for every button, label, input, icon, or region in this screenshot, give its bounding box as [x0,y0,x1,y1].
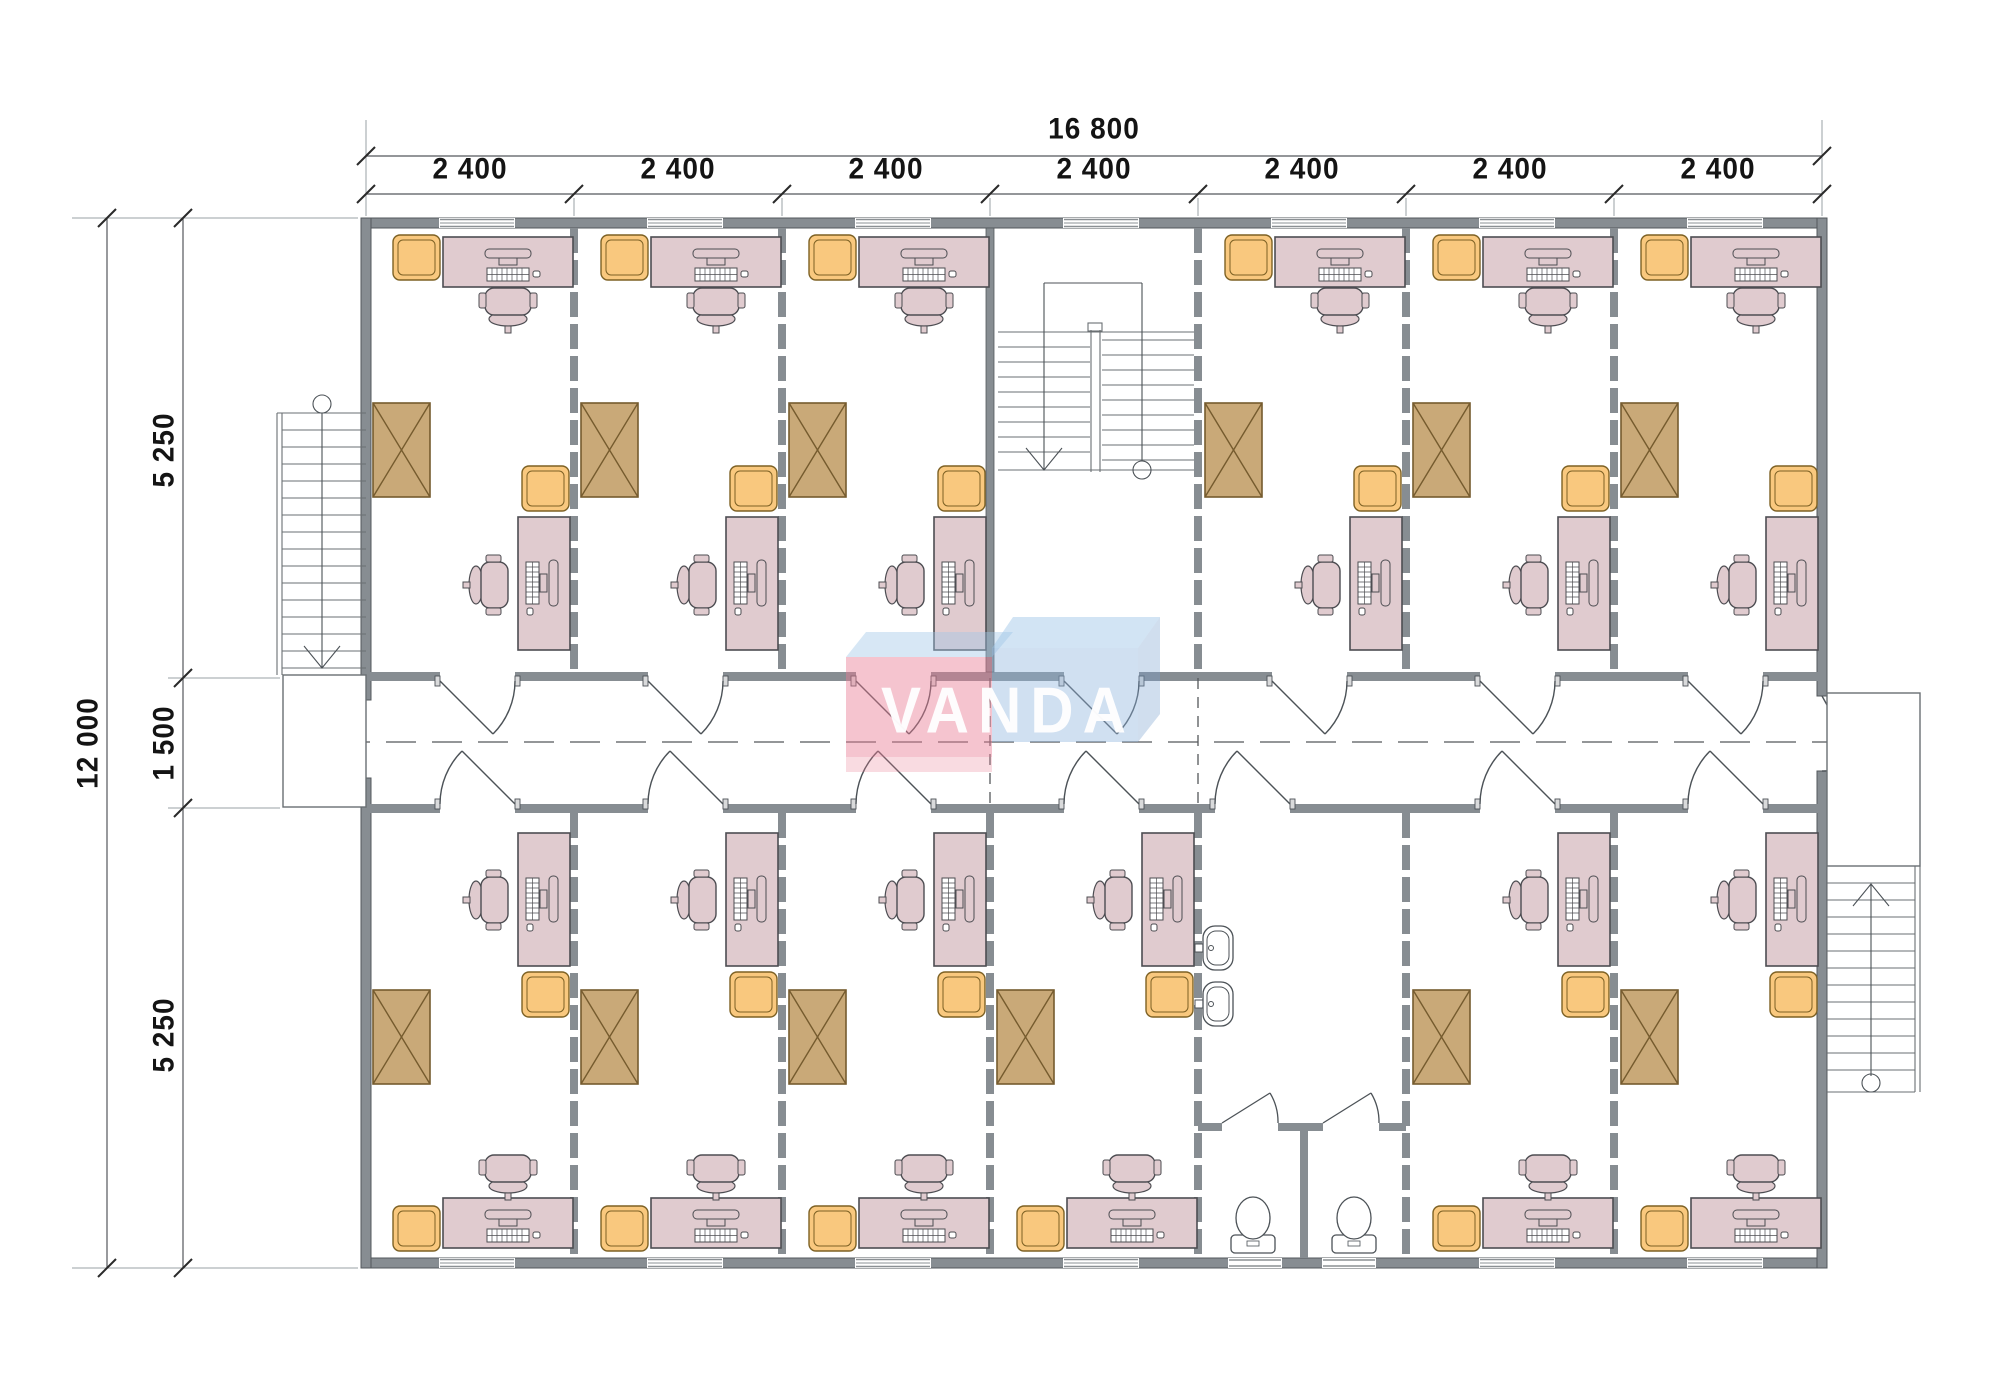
toilet [1231,1197,1275,1253]
dim-bay-5: 2 400 [1242,152,1362,186]
floor-plan-page: 16 800 2 400 2 400 2 400 2 400 2 400 2 4… [0,0,2000,1380]
dim-bay-6: 2 400 [1450,152,1570,186]
dim-bay-3: 2 400 [826,152,946,186]
toilet [1332,1197,1376,1253]
watermark-brand-text: VANDA [858,673,1158,748]
dim-overall-height: 12 000 [71,697,105,789]
landing-right [1827,693,1920,866]
dim-bay-2: 2 400 [618,152,738,186]
dim-bay-4: 2 400 [1034,152,1154,186]
stairs-left [277,395,366,807]
stairs-central [998,283,1194,479]
stairwell-wall [986,228,994,672]
bathroom [1195,926,1406,1258]
dim-height-seg-3: 5 250 [147,997,181,1072]
dim-bay-1: 2 400 [410,152,530,186]
dim-bay-7: 2 400 [1658,152,1778,186]
dim-height-seg-2: 1 500 [147,705,181,780]
stall-doors [1222,1093,1379,1123]
stairs-right [1827,693,1920,1092]
dim-height-seg-1: 5 250 [147,412,181,487]
dim-overall-width: 16 800 [994,112,1194,146]
landing-left [283,675,366,807]
